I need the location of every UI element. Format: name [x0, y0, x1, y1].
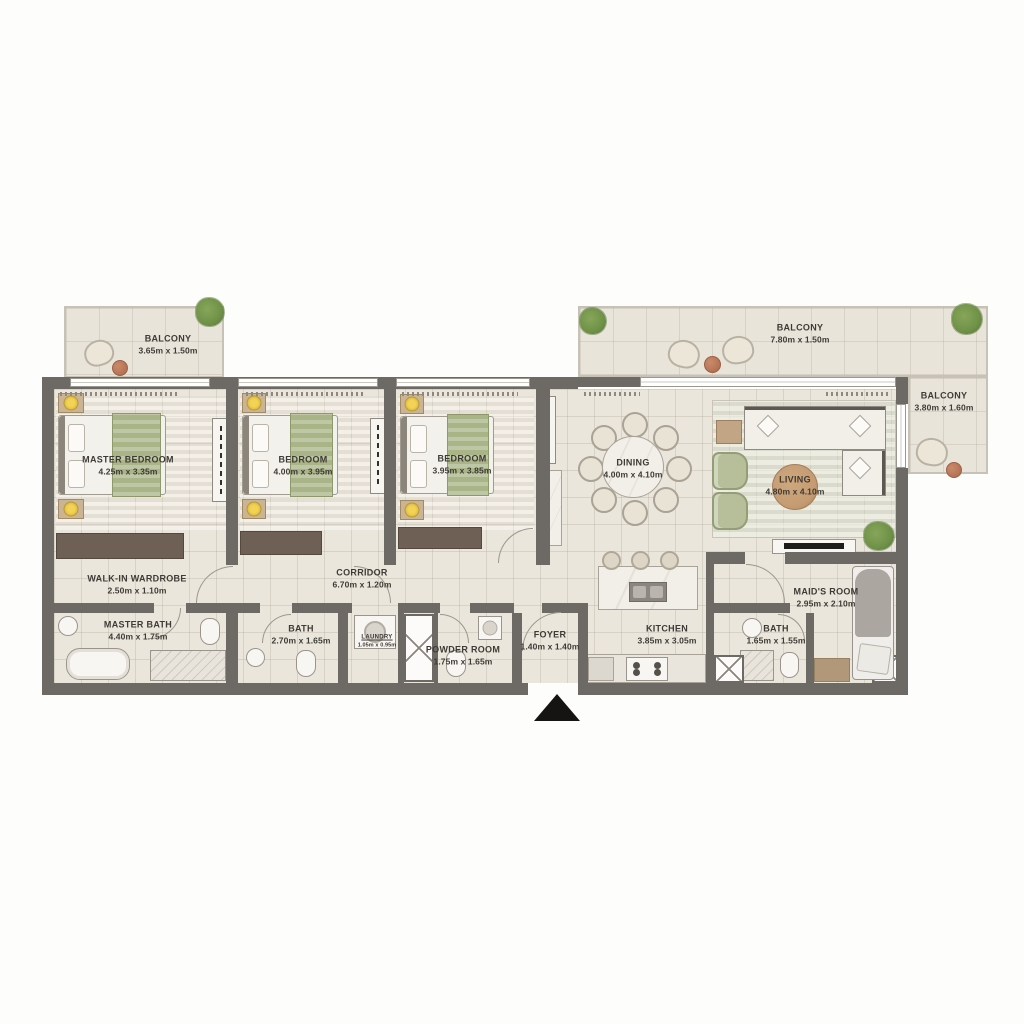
label-bedroom-3: BEDROOM 3.95m x 3.85m: [433, 454, 492, 477]
wall-left: [42, 377, 54, 695]
room-name: BALCONY: [771, 323, 830, 335]
sink-double: [629, 582, 667, 602]
lamp-icon: [247, 502, 262, 517]
wardrobe-bedroom3: [398, 527, 482, 549]
label-balcony-top-left: BALCONY 3.65m x 1.50m: [139, 334, 198, 357]
bar-stool: [660, 551, 679, 570]
curtain-icon: [402, 392, 518, 396]
room-dims: 4.25m x 3.35m: [82, 466, 174, 477]
lamp-icon: [64, 502, 79, 517]
wall-kitchen-maid: [706, 556, 714, 683]
nightstand: [242, 393, 266, 413]
tv-icon: [784, 543, 844, 549]
room-name: BATH: [272, 624, 331, 636]
room-dims: 1.65m x 1.55m: [747, 635, 806, 646]
room-dims: 7.80m x 1.50m: [771, 334, 830, 345]
room-dims: 3.80m x 1.60m: [915, 402, 974, 413]
curtain-icon: [246, 392, 364, 396]
label-powder-room: POWDER ROOM 1.75m x 1.65m: [426, 645, 500, 668]
dining-chair: [578, 456, 604, 482]
room-name: DINING: [604, 458, 663, 470]
toilet: [200, 618, 220, 645]
pillow: [252, 460, 269, 488]
room-name: BATH: [747, 624, 806, 636]
wall-corridor-5: [470, 603, 514, 613]
label-corridor: CORRIDOR 6.70m x 1.20m: [333, 568, 392, 591]
nightstand: [400, 500, 424, 520]
stove: [626, 657, 668, 681]
dining-chair: [622, 412, 648, 438]
wall-maidbath-maidroom: [806, 613, 814, 683]
room-name: MASTER BATH: [104, 620, 172, 632]
shower: [150, 650, 226, 681]
room-dims: 4.40m x 1.75m: [104, 631, 172, 642]
room-name: BALCONY: [139, 334, 198, 346]
wall-corridor-2: [186, 603, 260, 613]
room-name: LIVING: [766, 475, 825, 487]
label-walk-in-wardrobe: WALK-IN WARDROBE 2.50m x 1.10m: [87, 574, 186, 597]
pillow: [68, 424, 85, 452]
plant-icon: [952, 304, 982, 334]
burner: [633, 662, 640, 669]
wall-corridor-1: [54, 603, 154, 613]
window-living-balcony-right: [896, 404, 906, 468]
room-name: MAID'S ROOM: [794, 587, 859, 599]
wardrobe-master: [56, 533, 184, 559]
console-table: [548, 470, 562, 546]
room-dims: 2.50m x 1.10m: [87, 585, 186, 596]
room-dims: 3.85m x 3.05m: [638, 635, 697, 646]
wall-right-lower: [896, 468, 908, 695]
wall-mbath-bath: [226, 603, 238, 683]
label-bath-2: BATH 2.70m x 1.65m: [272, 624, 331, 647]
wall-bottom-left: [42, 683, 528, 695]
door-mat: [814, 658, 850, 682]
room-dims: 4.80m x 4.10m: [766, 486, 825, 497]
label-balcony-top-right: BALCONY 7.80m x 1.50m: [771, 323, 830, 346]
lamp-icon: [405, 397, 420, 412]
washbasin: [58, 616, 78, 636]
window-living-slider: [640, 377, 896, 387]
label-living: LIVING 4.80m x 4.10m: [766, 475, 825, 498]
burner: [654, 662, 661, 669]
label-dining: DINING 4.00m x 4.10m: [604, 458, 663, 481]
wall-living-maid-2: [785, 552, 896, 564]
label-master-bath: MASTER BATH 4.40m x 1.75m: [104, 620, 172, 643]
wall-bath-laundry: [338, 613, 348, 683]
headboard: [243, 416, 249, 494]
plant-icon: [196, 298, 224, 326]
side-table: [716, 420, 742, 444]
nightstand: [58, 393, 84, 413]
burner: [633, 669, 640, 676]
toilet: [296, 650, 316, 677]
wall-living-maid-1: [706, 552, 745, 564]
wall-bottom-right: [586, 683, 908, 695]
side-pot-table: [704, 356, 721, 373]
dining-chair: [666, 456, 692, 482]
dining-chair: [653, 487, 679, 513]
burner: [654, 669, 661, 676]
label-maids-bath: BATH 1.65m x 1.55m: [747, 624, 806, 647]
room-name: MASTER BEDROOM: [82, 455, 174, 467]
curtain-icon: [60, 392, 178, 396]
headboard: [59, 416, 65, 494]
toilet: [780, 652, 799, 678]
wall-corridor-3: [292, 603, 352, 613]
headboard: [401, 417, 407, 493]
window-master: [70, 378, 210, 387]
wall-corridor-4: [398, 603, 440, 613]
room-dims: 1.40m x 1.40m: [521, 641, 580, 652]
nightstand: [242, 499, 266, 519]
room-name: CORRIDOR: [333, 568, 392, 580]
room-name: LAUNDRY: [358, 635, 397, 643]
plant-icon: [580, 308, 606, 334]
label-bedroom-2: BEDROOM 4.00m x 3.95m: [274, 455, 333, 478]
wall-master-bed2: [226, 389, 238, 565]
bar-stool: [631, 551, 650, 570]
sink-basin: [633, 586, 646, 598]
room-dims: 1.75m x 1.65m: [426, 656, 500, 667]
room-name: BEDROOM: [274, 455, 333, 467]
wall-laundry-closet: [398, 613, 404, 683]
lamp-icon: [247, 396, 262, 411]
sink-basin: [650, 586, 663, 598]
room-name: FOYER: [521, 630, 580, 642]
maids-bed: [852, 566, 894, 680]
vanity: [478, 616, 502, 640]
bathtub: [66, 648, 130, 680]
room-dims: 4.00m x 3.95m: [274, 466, 333, 477]
floor-plan: BALCONY 3.65m x 1.50m MASTER BEDROOM 4.2…: [0, 0, 1024, 1024]
wall-right-upper: [896, 377, 908, 404]
room-name: BALCONY: [915, 391, 974, 403]
room-dims: 6.70m x 1.20m: [333, 579, 392, 590]
room-dims: 2.95m x 2.10m: [794, 598, 859, 609]
wall-maidbath-top: [706, 603, 790, 613]
basin: [483, 621, 498, 636]
side-pot-table: [946, 462, 962, 478]
washbasin: [246, 648, 265, 667]
label-laundry: LAUNDRY 1.05m x 0.95m: [358, 635, 397, 650]
room-name: BEDROOM: [433, 454, 492, 466]
room-dims: 1.05m x 0.95m: [358, 642, 397, 649]
side-pot-table: [112, 360, 128, 376]
nightstand: [58, 499, 84, 519]
room-name: WALK-IN WARDROBE: [87, 574, 186, 586]
label-foyer: FOYER 1.40m x 1.40m: [521, 630, 580, 653]
wardrobe-bedroom2: [240, 531, 322, 555]
wall-bed2-bed3: [384, 389, 396, 565]
pillow: [856, 643, 892, 675]
shower: [740, 650, 774, 681]
label-master-bedroom: MASTER BEDROOM 4.25m x 3.35m: [82, 455, 174, 478]
room-dims: 3.95m x 3.85m: [433, 465, 492, 476]
plant-icon: [864, 522, 894, 550]
nightstand: [400, 394, 424, 414]
room-dims: 3.65m x 1.50m: [139, 345, 198, 356]
label-kitchen: KITCHEN 3.85m x 3.05m: [638, 624, 697, 647]
pillow: [252, 424, 269, 452]
bar-stool: [602, 551, 621, 570]
label-balcony-right: BALCONY 3.80m x 1.60m: [915, 391, 974, 414]
window-bedroom3: [396, 378, 530, 387]
curtain-icon: [826, 392, 890, 396]
pillow: [410, 425, 427, 453]
fridge: [588, 657, 614, 681]
pillow: [410, 460, 427, 488]
room-name: KITCHEN: [638, 624, 697, 636]
lamp-icon: [405, 503, 420, 518]
shaft-icon: [714, 655, 744, 683]
label-maids-room: MAID'S ROOM 2.95m x 2.10m: [794, 587, 859, 610]
room-dims: 4.00m x 4.10m: [604, 469, 663, 480]
lamp-icon: [64, 396, 79, 411]
armchair: [712, 452, 748, 490]
window-bedroom2: [238, 378, 378, 387]
dining-chair: [622, 500, 648, 526]
curtain-icon: [584, 392, 640, 396]
room-name: POWDER ROOM: [426, 645, 500, 657]
duvet: [855, 569, 891, 637]
wall-top-right-wing: [578, 377, 640, 387]
armchair: [712, 492, 748, 530]
entrance-arrow-icon: [534, 694, 580, 721]
wall-bed3-dining: [536, 389, 550, 565]
room-dims: 2.70m x 1.65m: [272, 635, 331, 646]
